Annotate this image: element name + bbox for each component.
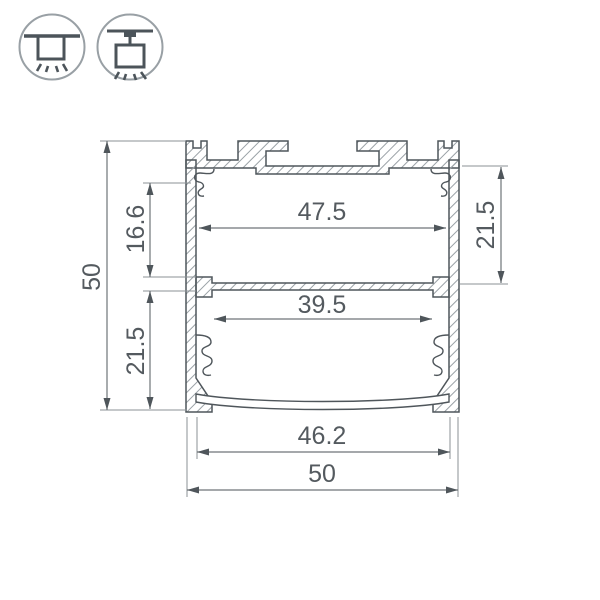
arrow-left-icon xyxy=(197,449,209,456)
arrow-down-icon xyxy=(147,265,154,277)
screw-boss-lower-right xyxy=(433,335,449,375)
profile-top-section xyxy=(186,141,459,174)
mount-type-icons xyxy=(20,15,163,81)
dim-bottom-opening-width-label: 46.2 xyxy=(298,422,347,450)
arrow-right-icon xyxy=(434,225,446,232)
arrow-down-icon xyxy=(104,398,111,410)
arrow-up-icon xyxy=(498,167,505,179)
arrow-left-icon xyxy=(214,316,226,323)
drawing-canvas: 50 16.6 21.5 47.5 21.5 39.5 xyxy=(0,0,600,600)
profile-diffuser-plate xyxy=(196,394,449,410)
arrow-up-icon xyxy=(147,183,154,195)
technical-drawing: 50 16.6 21.5 47.5 21.5 39.5 xyxy=(0,0,600,600)
screw-boss-upper-right xyxy=(431,169,450,196)
arrow-down-icon xyxy=(498,271,505,283)
arrow-up-icon xyxy=(147,291,154,303)
surface-mount-light-icon xyxy=(20,15,85,80)
dim-overall-width-label: 50 xyxy=(308,460,336,488)
dim-bottom-opening-width: 46.2 xyxy=(197,417,450,459)
dim-lower-inner-width: 39.5 xyxy=(214,291,432,323)
dim-lower-inner-width-label: 39.5 xyxy=(298,291,347,319)
light-rays-icon xyxy=(37,64,67,72)
screw-boss-upper-left xyxy=(195,169,214,196)
dim-upper-chamber-height-label: 16.6 xyxy=(122,205,150,254)
dim-upper-chamber-height-right: 21.5 xyxy=(460,166,508,284)
dim-upper-chamber-height-right-label: 21.5 xyxy=(472,201,500,250)
screw-boss-lower-left xyxy=(196,335,212,375)
pendant-mount-light-icon xyxy=(98,15,163,81)
profile-cross-section xyxy=(186,141,459,412)
arrow-right-icon xyxy=(446,487,458,494)
arrow-right-icon xyxy=(438,449,450,456)
dim-overall-height-label: 50 xyxy=(78,263,106,291)
arrow-left-icon xyxy=(199,225,211,232)
arrow-up-icon xyxy=(104,141,111,153)
dim-upper-inner-width: 47.5 xyxy=(199,198,446,232)
dim-lower-chamber-height-label: 21.5 xyxy=(122,327,150,376)
dim-lower-chamber-height: 21.5 xyxy=(122,291,196,409)
arrow-left-icon xyxy=(187,487,199,494)
dim-upper-chamber-height: 16.6 xyxy=(122,183,196,277)
dim-upper-inner-width-label: 47.5 xyxy=(298,198,347,226)
arrow-right-icon xyxy=(420,316,432,323)
arrow-down-icon xyxy=(147,397,154,409)
